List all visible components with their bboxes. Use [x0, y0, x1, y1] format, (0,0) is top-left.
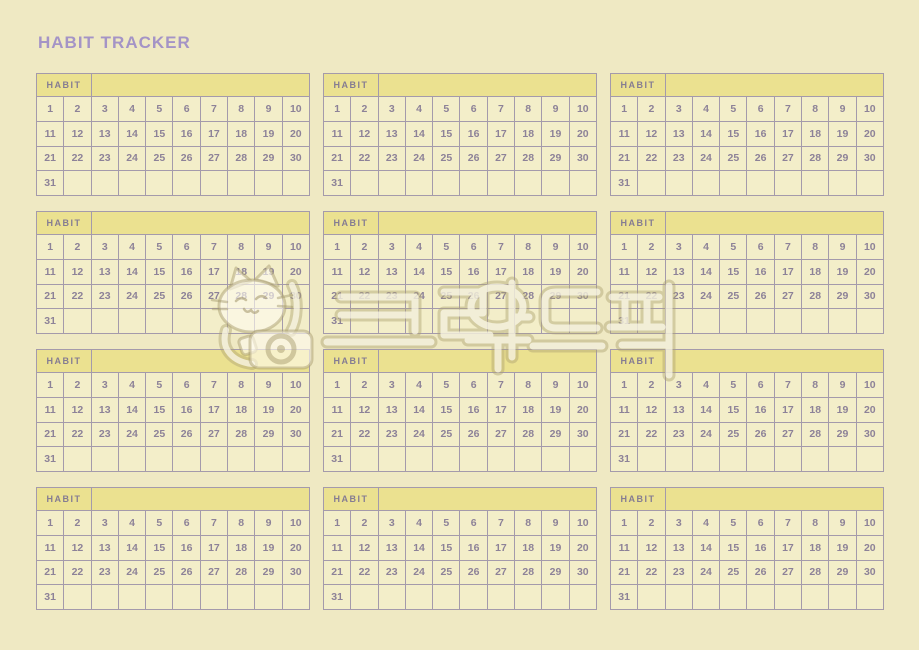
day-cell[interactable]: 17 [488, 122, 515, 146]
day-cell[interactable]: 14 [119, 260, 146, 284]
day-cell[interactable]: 26 [173, 285, 200, 309]
day-cell[interactable]: 14 [119, 122, 146, 146]
day-cell[interactable]: 10 [570, 511, 596, 535]
day-cell[interactable]: 16 [747, 260, 774, 284]
empty-cell[interactable] [542, 309, 569, 333]
day-cell[interactable]: 4 [119, 97, 146, 121]
day-cell[interactable]: 17 [775, 398, 802, 422]
day-cell[interactable]: 22 [351, 423, 378, 447]
day-cell[interactable]: 8 [515, 235, 542, 259]
empty-cell[interactable] [283, 585, 309, 609]
day-cell[interactable]: 23 [666, 147, 693, 171]
day-cell[interactable]: 21 [611, 147, 638, 171]
empty-cell[interactable] [406, 447, 433, 471]
day-cell[interactable]: 30 [283, 147, 309, 171]
day-cell[interactable]: 14 [119, 536, 146, 560]
day-cell[interactable]: 13 [92, 260, 119, 284]
empty-cell[interactable] [515, 309, 542, 333]
day-cell[interactable]: 17 [201, 122, 228, 146]
habit-name-cell[interactable] [666, 488, 883, 510]
day-cell[interactable]: 15 [433, 398, 460, 422]
day-cell[interactable]: 21 [611, 561, 638, 585]
empty-cell[interactable] [283, 447, 309, 471]
day-cell[interactable]: 16 [460, 122, 487, 146]
day-cell[interactable]: 9 [542, 511, 569, 535]
day-cell[interactable]: 25 [146, 147, 173, 171]
day-cell[interactable]: 21 [37, 423, 64, 447]
day-cell[interactable]: 5 [720, 511, 747, 535]
day-cell[interactable]: 31 [324, 309, 351, 333]
day-cell[interactable]: 22 [638, 285, 665, 309]
habit-name-cell[interactable] [666, 212, 883, 234]
day-cell[interactable]: 2 [64, 511, 91, 535]
day-cell[interactable]: 3 [92, 97, 119, 121]
day-cell[interactable]: 18 [515, 260, 542, 284]
day-cell[interactable]: 28 [515, 561, 542, 585]
day-cell[interactable]: 30 [283, 423, 309, 447]
day-cell[interactable]: 19 [829, 398, 856, 422]
empty-cell[interactable] [775, 447, 802, 471]
day-cell[interactable]: 16 [747, 398, 774, 422]
empty-cell[interactable] [64, 171, 91, 195]
empty-cell[interactable] [515, 447, 542, 471]
day-cell[interactable]: 27 [775, 423, 802, 447]
day-cell[interactable]: 19 [829, 260, 856, 284]
day-cell[interactable]: 3 [666, 511, 693, 535]
day-cell[interactable]: 31 [324, 447, 351, 471]
day-cell[interactable]: 18 [802, 260, 829, 284]
day-cell[interactable]: 6 [460, 511, 487, 535]
day-cell[interactable]: 11 [611, 122, 638, 146]
day-cell[interactable]: 19 [255, 398, 282, 422]
empty-cell[interactable] [747, 585, 774, 609]
day-cell[interactable]: 11 [37, 122, 64, 146]
empty-cell[interactable] [64, 309, 91, 333]
day-cell[interactable]: 3 [379, 235, 406, 259]
day-cell[interactable]: 27 [775, 561, 802, 585]
day-cell[interactable]: 7 [775, 97, 802, 121]
day-cell[interactable]: 11 [324, 122, 351, 146]
day-cell[interactable]: 10 [857, 97, 883, 121]
empty-cell[interactable] [64, 447, 91, 471]
day-cell[interactable]: 4 [693, 511, 720, 535]
day-cell[interactable]: 22 [351, 147, 378, 171]
empty-cell[interactable] [857, 585, 883, 609]
day-cell[interactable]: 28 [228, 423, 255, 447]
day-cell[interactable]: 22 [351, 285, 378, 309]
day-cell[interactable]: 18 [228, 122, 255, 146]
empty-cell[interactable] [406, 171, 433, 195]
day-cell[interactable]: 7 [775, 235, 802, 259]
day-cell[interactable]: 6 [747, 235, 774, 259]
day-cell[interactable]: 31 [37, 171, 64, 195]
day-cell[interactable]: 9 [829, 235, 856, 259]
empty-cell[interactable] [119, 309, 146, 333]
day-cell[interactable]: 13 [666, 398, 693, 422]
day-cell[interactable]: 31 [611, 585, 638, 609]
day-cell[interactable]: 4 [119, 511, 146, 535]
empty-cell[interactable] [283, 309, 309, 333]
empty-cell[interactable] [379, 447, 406, 471]
day-cell[interactable]: 29 [829, 561, 856, 585]
day-cell[interactable]: 7 [488, 511, 515, 535]
day-cell[interactable]: 1 [37, 373, 64, 397]
day-cell[interactable]: 3 [379, 511, 406, 535]
day-cell[interactable]: 23 [666, 285, 693, 309]
day-cell[interactable]: 12 [351, 398, 378, 422]
day-cell[interactable]: 22 [638, 423, 665, 447]
habit-name-cell[interactable] [379, 212, 596, 234]
day-cell[interactable]: 5 [146, 373, 173, 397]
day-cell[interactable]: 13 [92, 122, 119, 146]
empty-cell[interactable] [119, 585, 146, 609]
day-cell[interactable]: 29 [255, 561, 282, 585]
day-cell[interactable]: 4 [119, 373, 146, 397]
day-cell[interactable]: 19 [542, 398, 569, 422]
day-cell[interactable]: 4 [406, 511, 433, 535]
day-cell[interactable]: 25 [433, 285, 460, 309]
day-cell[interactable]: 13 [92, 536, 119, 560]
day-cell[interactable]: 1 [611, 373, 638, 397]
habit-name-cell[interactable] [92, 74, 309, 96]
day-cell[interactable]: 12 [638, 398, 665, 422]
day-cell[interactable]: 28 [228, 561, 255, 585]
day-cell[interactable]: 4 [119, 235, 146, 259]
empty-cell[interactable] [638, 447, 665, 471]
day-cell[interactable]: 8 [228, 373, 255, 397]
day-cell[interactable]: 12 [351, 260, 378, 284]
day-cell[interactable]: 9 [542, 235, 569, 259]
day-cell[interactable]: 8 [228, 235, 255, 259]
day-cell[interactable]: 12 [638, 122, 665, 146]
day-cell[interactable]: 5 [720, 373, 747, 397]
day-cell[interactable]: 8 [515, 373, 542, 397]
day-cell[interactable]: 5 [146, 511, 173, 535]
day-cell[interactable]: 17 [201, 398, 228, 422]
day-cell[interactable]: 30 [570, 561, 596, 585]
empty-cell[interactable] [720, 171, 747, 195]
day-cell[interactable]: 5 [146, 235, 173, 259]
day-cell[interactable]: 2 [351, 235, 378, 259]
day-cell[interactable]: 16 [173, 398, 200, 422]
day-cell[interactable]: 24 [406, 561, 433, 585]
day-cell[interactable]: 24 [693, 423, 720, 447]
day-cell[interactable]: 13 [379, 536, 406, 560]
empty-cell[interactable] [92, 585, 119, 609]
empty-cell[interactable] [693, 585, 720, 609]
day-cell[interactable]: 6 [173, 511, 200, 535]
day-cell[interactable]: 1 [324, 373, 351, 397]
day-cell[interactable]: 11 [611, 536, 638, 560]
empty-cell[interactable] [228, 447, 255, 471]
day-cell[interactable]: 18 [515, 398, 542, 422]
day-cell[interactable]: 22 [351, 561, 378, 585]
empty-cell[interactable] [857, 309, 883, 333]
day-cell[interactable]: 25 [433, 423, 460, 447]
day-cell[interactable]: 3 [92, 235, 119, 259]
empty-cell[interactable] [638, 585, 665, 609]
day-cell[interactable]: 24 [693, 561, 720, 585]
day-cell[interactable]: 3 [92, 373, 119, 397]
day-cell[interactable]: 15 [720, 122, 747, 146]
empty-cell[interactable] [255, 585, 282, 609]
day-cell[interactable]: 15 [146, 260, 173, 284]
day-cell[interactable]: 23 [92, 285, 119, 309]
day-cell[interactable]: 29 [542, 285, 569, 309]
day-cell[interactable]: 14 [406, 122, 433, 146]
day-cell[interactable]: 29 [829, 423, 856, 447]
day-cell[interactable]: 28 [228, 285, 255, 309]
empty-cell[interactable] [747, 309, 774, 333]
day-cell[interactable]: 27 [201, 285, 228, 309]
day-cell[interactable]: 19 [542, 536, 569, 560]
empty-cell[interactable] [351, 447, 378, 471]
day-cell[interactable]: 6 [173, 97, 200, 121]
day-cell[interactable]: 29 [255, 423, 282, 447]
day-cell[interactable]: 17 [775, 536, 802, 560]
day-cell[interactable]: 8 [802, 511, 829, 535]
empty-cell[interactable] [857, 171, 883, 195]
day-cell[interactable]: 4 [693, 235, 720, 259]
empty-cell[interactable] [460, 447, 487, 471]
day-cell[interactable]: 4 [693, 373, 720, 397]
empty-cell[interactable] [173, 309, 200, 333]
day-cell[interactable]: 24 [119, 285, 146, 309]
day-cell[interactable]: 1 [611, 235, 638, 259]
day-cell[interactable]: 27 [201, 147, 228, 171]
day-cell[interactable]: 14 [406, 260, 433, 284]
empty-cell[interactable] [201, 585, 228, 609]
empty-cell[interactable] [460, 171, 487, 195]
day-cell[interactable]: 17 [488, 536, 515, 560]
day-cell[interactable]: 10 [283, 373, 309, 397]
day-cell[interactable]: 3 [92, 511, 119, 535]
empty-cell[interactable] [775, 309, 802, 333]
day-cell[interactable]: 12 [351, 122, 378, 146]
day-cell[interactable]: 13 [92, 398, 119, 422]
day-cell[interactable]: 6 [747, 97, 774, 121]
day-cell[interactable]: 26 [747, 285, 774, 309]
habit-name-cell[interactable] [379, 488, 596, 510]
day-cell[interactable]: 23 [92, 147, 119, 171]
day-cell[interactable]: 27 [201, 561, 228, 585]
day-cell[interactable]: 27 [201, 423, 228, 447]
empty-cell[interactable] [228, 309, 255, 333]
day-cell[interactable]: 31 [37, 585, 64, 609]
empty-cell[interactable] [802, 309, 829, 333]
day-cell[interactable]: 7 [775, 373, 802, 397]
day-cell[interactable]: 10 [857, 235, 883, 259]
day-cell[interactable]: 21 [324, 285, 351, 309]
day-cell[interactable]: 14 [693, 536, 720, 560]
day-cell[interactable]: 27 [775, 147, 802, 171]
empty-cell[interactable] [666, 309, 693, 333]
day-cell[interactable]: 9 [829, 511, 856, 535]
day-cell[interactable]: 29 [542, 147, 569, 171]
day-cell[interactable]: 23 [379, 561, 406, 585]
empty-cell[interactable] [460, 585, 487, 609]
empty-cell[interactable] [570, 309, 596, 333]
day-cell[interactable]: 4 [406, 97, 433, 121]
day-cell[interactable]: 22 [64, 561, 91, 585]
day-cell[interactable]: 8 [228, 511, 255, 535]
day-cell[interactable]: 16 [460, 398, 487, 422]
day-cell[interactable]: 21 [324, 147, 351, 171]
day-cell[interactable]: 21 [37, 147, 64, 171]
day-cell[interactable]: 26 [460, 423, 487, 447]
day-cell[interactable]: 30 [570, 285, 596, 309]
empty-cell[interactable] [775, 585, 802, 609]
day-cell[interactable]: 4 [406, 235, 433, 259]
day-cell[interactable]: 15 [720, 260, 747, 284]
day-cell[interactable]: 10 [570, 235, 596, 259]
empty-cell[interactable] [173, 585, 200, 609]
day-cell[interactable]: 2 [351, 97, 378, 121]
day-cell[interactable]: 12 [64, 260, 91, 284]
day-cell[interactable]: 27 [775, 285, 802, 309]
day-cell[interactable]: 7 [201, 373, 228, 397]
day-cell[interactable]: 28 [802, 423, 829, 447]
day-cell[interactable]: 2 [64, 97, 91, 121]
empty-cell[interactable] [542, 447, 569, 471]
day-cell[interactable]: 6 [460, 235, 487, 259]
day-cell[interactable]: 7 [201, 511, 228, 535]
empty-cell[interactable] [747, 171, 774, 195]
day-cell[interactable]: 9 [542, 97, 569, 121]
empty-cell[interactable] [173, 171, 200, 195]
day-cell[interactable]: 13 [379, 398, 406, 422]
day-cell[interactable]: 24 [119, 561, 146, 585]
day-cell[interactable]: 9 [255, 97, 282, 121]
day-cell[interactable]: 2 [64, 235, 91, 259]
day-cell[interactable]: 28 [802, 285, 829, 309]
empty-cell[interactable] [638, 309, 665, 333]
empty-cell[interactable] [775, 171, 802, 195]
day-cell[interactable]: 9 [829, 373, 856, 397]
day-cell[interactable]: 12 [64, 536, 91, 560]
day-cell[interactable]: 20 [283, 536, 309, 560]
day-cell[interactable]: 6 [747, 373, 774, 397]
day-cell[interactable]: 24 [119, 147, 146, 171]
day-cell[interactable]: 1 [37, 97, 64, 121]
day-cell[interactable]: 27 [488, 423, 515, 447]
day-cell[interactable]: 1 [324, 235, 351, 259]
day-cell[interactable]: 10 [857, 373, 883, 397]
day-cell[interactable]: 20 [570, 260, 596, 284]
day-cell[interactable]: 28 [515, 285, 542, 309]
day-cell[interactable]: 2 [638, 235, 665, 259]
empty-cell[interactable] [720, 585, 747, 609]
empty-cell[interactable] [119, 447, 146, 471]
day-cell[interactable]: 30 [570, 423, 596, 447]
day-cell[interactable]: 28 [802, 561, 829, 585]
day-cell[interactable]: 8 [802, 373, 829, 397]
empty-cell[interactable] [433, 171, 460, 195]
day-cell[interactable]: 30 [283, 561, 309, 585]
day-cell[interactable]: 3 [666, 373, 693, 397]
empty-cell[interactable] [228, 585, 255, 609]
day-cell[interactable]: 8 [802, 235, 829, 259]
day-cell[interactable]: 19 [255, 260, 282, 284]
day-cell[interactable]: 20 [283, 122, 309, 146]
empty-cell[interactable] [570, 585, 596, 609]
empty-cell[interactable] [64, 585, 91, 609]
day-cell[interactable]: 14 [693, 398, 720, 422]
day-cell[interactable]: 2 [351, 511, 378, 535]
day-cell[interactable]: 4 [406, 373, 433, 397]
empty-cell[interactable] [802, 585, 829, 609]
empty-cell[interactable] [119, 171, 146, 195]
empty-cell[interactable] [542, 171, 569, 195]
day-cell[interactable]: 5 [433, 97, 460, 121]
day-cell[interactable]: 5 [146, 97, 173, 121]
day-cell[interactable]: 29 [255, 285, 282, 309]
day-cell[interactable]: 15 [433, 122, 460, 146]
day-cell[interactable]: 31 [324, 585, 351, 609]
empty-cell[interactable] [747, 447, 774, 471]
day-cell[interactable]: 25 [720, 561, 747, 585]
day-cell[interactable]: 14 [693, 260, 720, 284]
day-cell[interactable]: 15 [146, 122, 173, 146]
empty-cell[interactable] [146, 447, 173, 471]
habit-name-cell[interactable] [92, 350, 309, 372]
empty-cell[interactable] [638, 171, 665, 195]
empty-cell[interactable] [283, 171, 309, 195]
empty-cell[interactable] [351, 171, 378, 195]
day-cell[interactable]: 10 [857, 511, 883, 535]
day-cell[interactable]: 21 [324, 423, 351, 447]
day-cell[interactable]: 20 [570, 398, 596, 422]
empty-cell[interactable] [720, 447, 747, 471]
habit-name-cell[interactable] [92, 212, 309, 234]
day-cell[interactable]: 19 [829, 122, 856, 146]
day-cell[interactable]: 22 [64, 285, 91, 309]
day-cell[interactable]: 31 [37, 447, 64, 471]
day-cell[interactable]: 29 [542, 561, 569, 585]
day-cell[interactable]: 10 [283, 511, 309, 535]
day-cell[interactable]: 2 [638, 511, 665, 535]
habit-name-cell[interactable] [379, 74, 596, 96]
day-cell[interactable]: 26 [173, 423, 200, 447]
day-cell[interactable]: 21 [611, 285, 638, 309]
day-cell[interactable]: 22 [64, 147, 91, 171]
day-cell[interactable]: 23 [666, 561, 693, 585]
empty-cell[interactable] [201, 309, 228, 333]
day-cell[interactable]: 17 [488, 398, 515, 422]
day-cell[interactable]: 31 [37, 309, 64, 333]
day-cell[interactable]: 5 [433, 511, 460, 535]
day-cell[interactable]: 20 [857, 260, 883, 284]
day-cell[interactable]: 17 [201, 260, 228, 284]
empty-cell[interactable] [379, 585, 406, 609]
empty-cell[interactable] [255, 447, 282, 471]
day-cell[interactable]: 21 [37, 561, 64, 585]
day-cell[interactable]: 11 [37, 398, 64, 422]
day-cell[interactable]: 26 [173, 561, 200, 585]
empty-cell[interactable] [720, 309, 747, 333]
day-cell[interactable]: 14 [119, 398, 146, 422]
day-cell[interactable]: 8 [515, 511, 542, 535]
day-cell[interactable]: 7 [201, 235, 228, 259]
empty-cell[interactable] [351, 309, 378, 333]
empty-cell[interactable] [406, 585, 433, 609]
day-cell[interactable]: 5 [720, 97, 747, 121]
day-cell[interactable]: 1 [611, 511, 638, 535]
empty-cell[interactable] [488, 447, 515, 471]
day-cell[interactable]: 10 [570, 97, 596, 121]
day-cell[interactable]: 6 [460, 373, 487, 397]
day-cell[interactable]: 1 [324, 97, 351, 121]
